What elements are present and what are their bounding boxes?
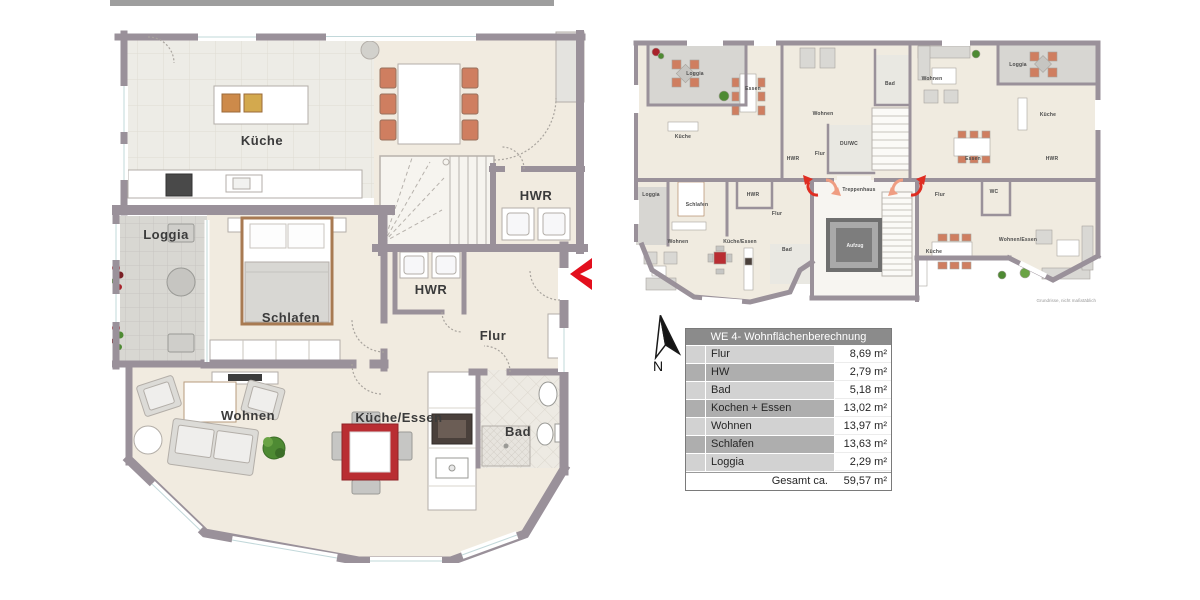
ov-label-flur-we4: Flur xyxy=(772,211,782,217)
main-floorplan: Küche HWR Loggia Schlafen HWR Flur Wohne… xyxy=(112,28,607,563)
row-value: 2,79 m² xyxy=(835,364,891,381)
row-label: Wohnen xyxy=(706,418,834,435)
area-table: WE 4- Wohnflächenberechnung Flur 8,69 m²… xyxy=(685,328,892,491)
total-value: 59,57 m² xyxy=(835,473,891,490)
ov-label-wohnen-ct: Wohnen xyxy=(813,111,834,117)
ov-label-flur-br: Flur xyxy=(935,192,945,198)
ov-label-wohnen-we4: Wohnen xyxy=(668,239,689,245)
area-table-title: WE 4- Wohnflächenberechnung xyxy=(686,329,891,345)
table-row: Flur 8,69 m² xyxy=(686,346,891,363)
ov-label-hwr-ct: HWR xyxy=(787,156,800,162)
room-label-bad: Bad xyxy=(505,424,531,439)
row-value: 13,63 m² xyxy=(835,436,891,453)
row-label: Schlafen xyxy=(706,436,834,453)
row-label: Bad xyxy=(706,382,834,399)
row-value: 5,18 m² xyxy=(835,382,891,399)
row-value: 13,97 m² xyxy=(835,418,891,435)
room-label-wohnen: Wohnen xyxy=(221,408,275,423)
row-label: Loggia xyxy=(706,454,834,471)
north-arrow-icon xyxy=(649,313,680,358)
row-spacer xyxy=(686,346,705,363)
ov-label-hwr-tr: HWR xyxy=(1046,156,1059,162)
ov-label-treppenhaus: Treppenhaus xyxy=(842,187,875,193)
ov-label-wohnen-tr: Wohnen xyxy=(922,76,943,82)
row-label: HW xyxy=(706,364,834,381)
ov-label-kueche-br: Küche xyxy=(926,249,942,255)
north-label: N xyxy=(653,358,663,374)
ov-label-duwc-ct: DU/WC xyxy=(840,141,858,147)
plan-caption: Grundrisse, nicht maßstäblich xyxy=(1036,298,1096,303)
ov-label-essen-tr: Essen xyxy=(965,156,981,162)
row-value: 2,29 m² xyxy=(835,454,891,471)
ov-label-loggia-tr: Loggia xyxy=(1009,62,1027,68)
table-total-row: Gesamt ca. 59,57 m² xyxy=(686,472,891,490)
room-label-schlafen: Schlafen xyxy=(262,310,320,325)
table-row: Schlafen 13,63 m² xyxy=(686,436,891,453)
total-label: Gesamt ca. xyxy=(686,473,834,490)
ov-label-kueche-tr: Küche xyxy=(1040,112,1056,118)
north-compass: N xyxy=(646,312,682,374)
ov-label-bad-we4: Bad xyxy=(782,247,792,253)
ov-label-flur-ct: Flur xyxy=(815,151,825,157)
ov-label-kueche-tl: Küche xyxy=(675,134,691,140)
row-spacer xyxy=(686,436,705,453)
row-spacer xyxy=(686,400,705,417)
table-row: Loggia 2,29 m² xyxy=(686,454,891,471)
ov-label-aufzug: Aufzug xyxy=(847,243,864,249)
entrance-arrow-icon xyxy=(570,258,592,290)
room-label-hwr: HWR xyxy=(415,282,448,297)
row-value: 8,69 m² xyxy=(835,346,891,363)
ov-label-hwr-we4: HWR xyxy=(747,192,760,198)
row-label: Kochen + Essen xyxy=(706,400,834,417)
top-bar xyxy=(110,0,554,6)
ov-label-bad-tr: Bad xyxy=(885,81,895,87)
ov-label-kueche-essen-we4: Küche/Essen xyxy=(723,239,757,245)
table-row: Kochen + Essen 13,02 m² xyxy=(686,400,891,417)
ov-label-schlafen-we4: Schlafen xyxy=(686,202,708,208)
ov-label-loggia-tl: Loggia xyxy=(686,71,704,77)
room-label-kueche-essen: Küche/Essen xyxy=(355,410,442,425)
row-spacer xyxy=(686,382,705,399)
floors xyxy=(116,34,584,561)
ov-label-wohnen-essen-br: Wohnen/Essen xyxy=(999,237,1037,243)
row-spacer xyxy=(686,418,705,435)
room-label-kueche: Küche xyxy=(241,133,283,148)
room-label-flur: Flur xyxy=(480,328,507,343)
table-row: HW 2,79 m² xyxy=(686,364,891,381)
row-spacer xyxy=(686,454,705,471)
row-spacer xyxy=(686,364,705,381)
row-value: 13,02 m² xyxy=(835,400,891,417)
ov-label-wc-br: WC xyxy=(990,189,999,195)
ov-label-essen-tl: Essen xyxy=(745,86,761,92)
room-label-loggia: Loggia xyxy=(143,227,189,242)
ov-label-loggia-we4: Loggia xyxy=(642,192,660,198)
row-label: Flur xyxy=(706,346,834,363)
table-row: Wohnen 13,97 m² xyxy=(686,418,891,435)
table-row: Bad 5,18 m² xyxy=(686,382,891,399)
overview-floorplan: Loggia Essen Küche Wohnen DU/WC Flur HWR… xyxy=(632,30,1102,305)
room-label-hwr-top: HWR xyxy=(520,188,553,203)
